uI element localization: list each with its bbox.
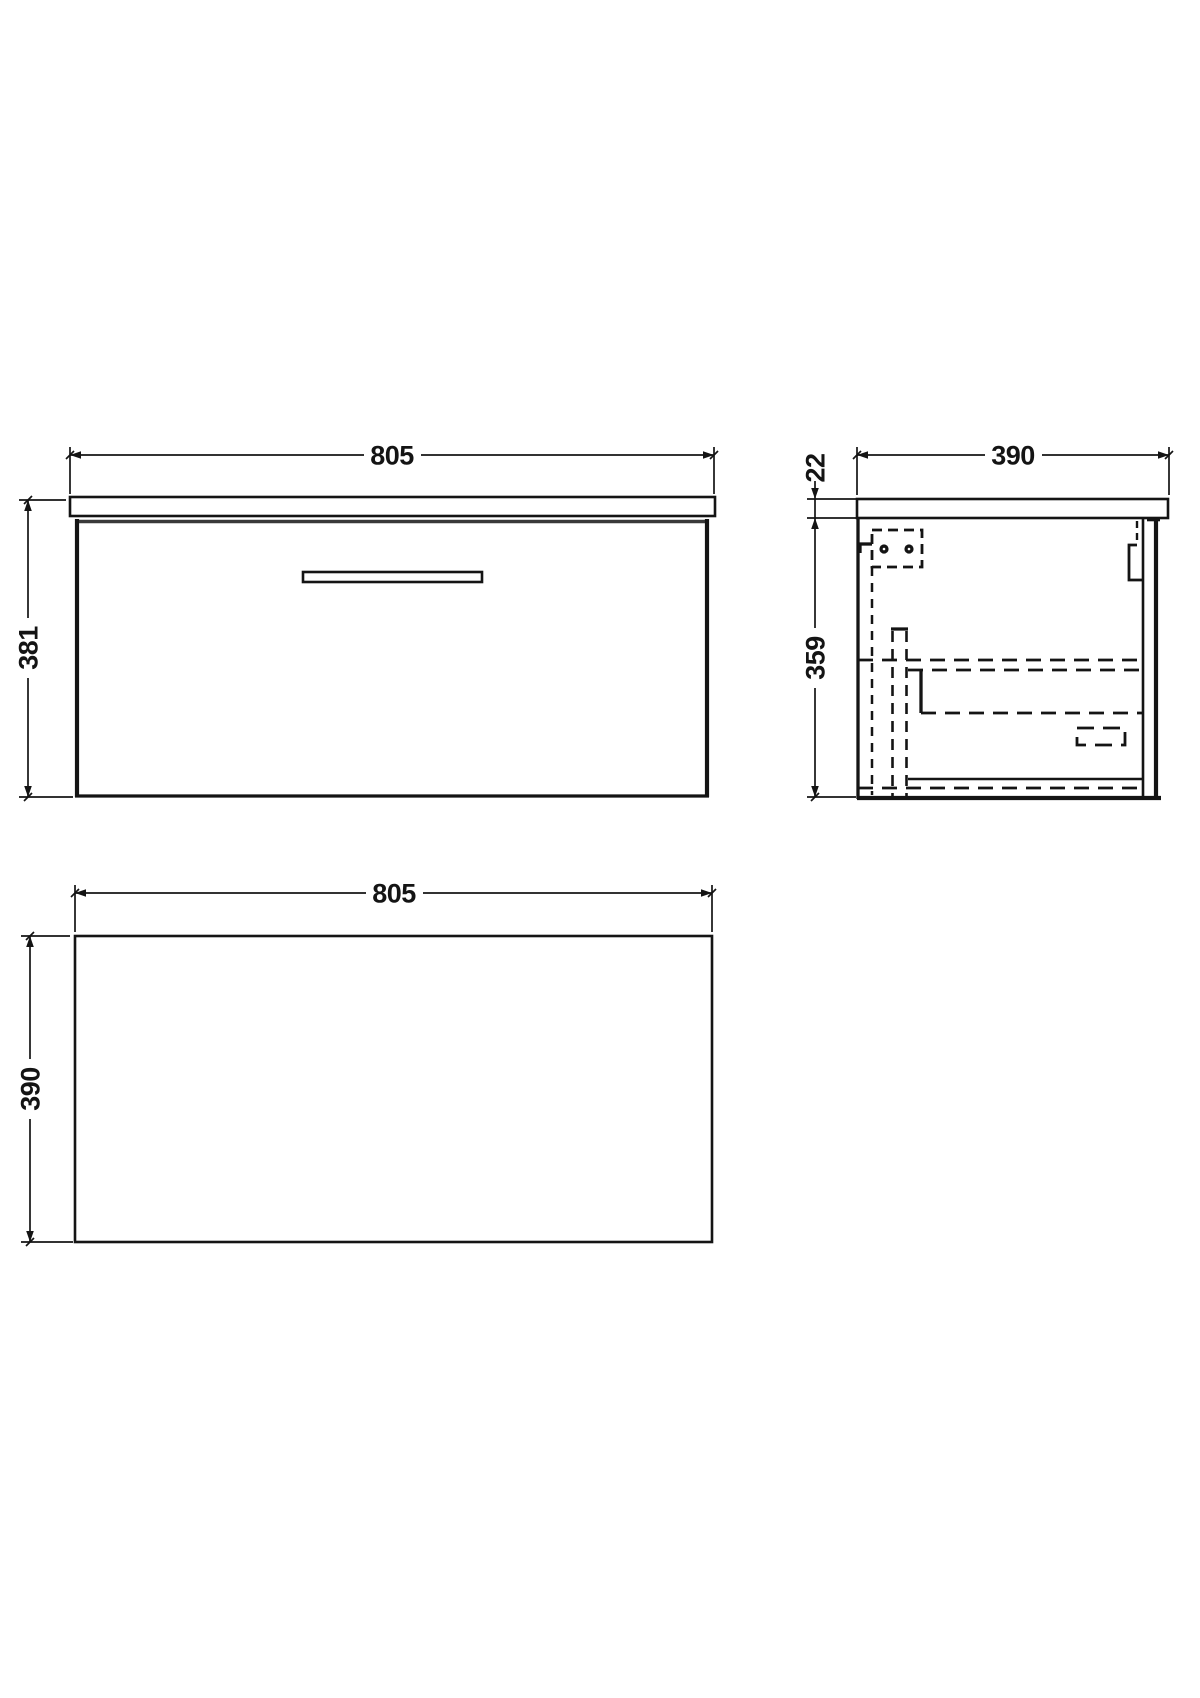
worktop-slab — [70, 497, 715, 516]
front-dim-width: 805 — [66, 440, 718, 494]
plan-dim-depth: 390 — [15, 932, 73, 1246]
side-wall-bracket — [857, 530, 922, 567]
bracket-screw-center — [908, 548, 911, 551]
plan-width-label: 805 — [372, 878, 416, 908]
worktop-slab — [857, 499, 1168, 518]
side-dim-worktop-thickness: 22 — [800, 453, 856, 529]
plan-view: 805 390 — [15, 878, 716, 1246]
front-height-label: 381 — [13, 626, 43, 670]
side-dim-height: 359 — [800, 518, 856, 801]
front-width-label: 805 — [370, 440, 414, 470]
front-cabinet-body — [75, 519, 709, 797]
side-cabinet-outline — [857, 518, 1161, 799]
side-drawer-hidden-lines — [858, 629, 1143, 797]
plan-depth-label: 390 — [15, 1067, 45, 1111]
side-worktop — [857, 499, 1168, 518]
front-worktop — [70, 497, 715, 522]
bracket-screw-center — [883, 548, 886, 551]
worktop-plan-rectangle — [75, 936, 712, 1242]
side-view: 390 22 359 — [800, 440, 1173, 801]
plan-dim-width: 805 — [71, 878, 716, 932]
front-view: 805 381 — [13, 440, 718, 801]
drawer-runner-block — [1077, 728, 1125, 745]
side-depth-label: 390 — [991, 440, 1035, 470]
side-worktop-thickness-label: 22 — [800, 453, 830, 482]
plan-outline — [75, 936, 712, 1242]
side-height-label: 359 — [800, 636, 830, 680]
side-dim-depth: 390 — [853, 440, 1173, 495]
technical-drawing-canvas: 805 381 — [0, 0, 1200, 1698]
drawer-handle — [303, 572, 482, 582]
front-dim-height: 381 — [13, 496, 73, 801]
arrowhead — [811, 488, 819, 499]
